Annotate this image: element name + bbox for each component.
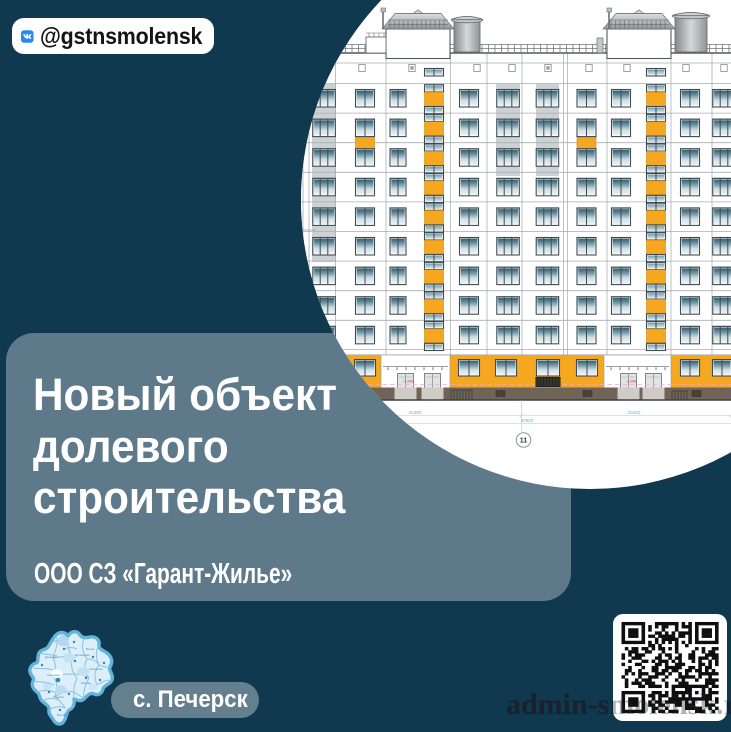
svg-text:-1.200: -1.200: [626, 380, 636, 384]
svg-text:Ярцево: Ярцево: [81, 681, 91, 685]
svg-text:20480: 20480: [409, 410, 422, 415]
svg-text:20400: 20400: [628, 410, 641, 415]
svg-text:Демидов: Демидов: [45, 655, 57, 659]
svg-text:40800: 40800: [521, 418, 534, 423]
svg-text:Смоленск: Смоленск: [47, 673, 61, 677]
svg-text:11: 11: [520, 438, 528, 445]
svg-text:Починок: Починок: [53, 695, 65, 699]
svg-text:Велиж: Велиж: [86, 647, 95, 651]
svg-text:Рославль: Рославль: [57, 713, 70, 717]
svg-text:Сафоново: Сафоново: [89, 667, 103, 671]
svg-text:Духовщина: Духовщина: [75, 653, 90, 657]
